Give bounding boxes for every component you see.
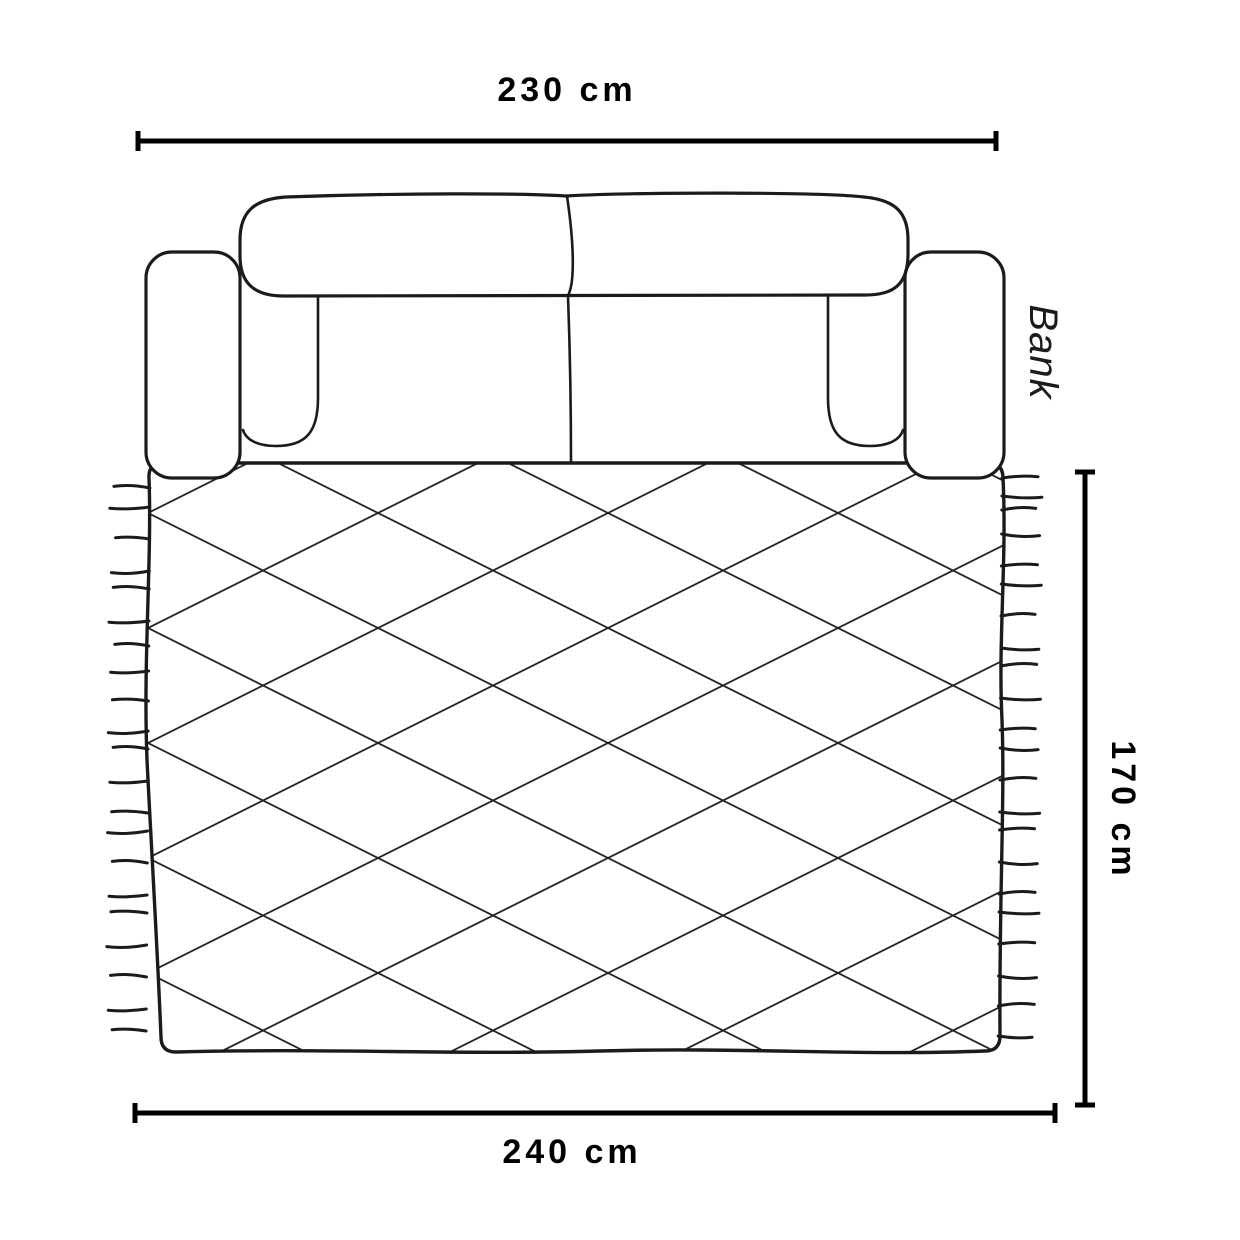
dim-right-label: 170 cm (1104, 740, 1142, 879)
rug-outline (146, 463, 1004, 1053)
dimension-right: 170 cm (1075, 472, 1142, 1105)
sofa-seat-seam (568, 296, 571, 462)
sofa-armrest-right (905, 252, 1004, 478)
dim-bottom-label: 240 cm (502, 1133, 641, 1171)
rug (107, 44, 1042, 1240)
rug-fringe-left (107, 486, 150, 1032)
sofa (146, 193, 1004, 478)
sofa-seat-crevice-right (828, 297, 903, 446)
dimension-top: 230 cm (138, 71, 996, 151)
sofa-armrest-left (146, 252, 240, 478)
diagram-canvas: 230 cm 240 cm 170 cm Bank (0, 0, 1240, 1240)
sofa-seat-crevice-left (243, 297, 318, 446)
dim-top-label: 230 cm (497, 71, 636, 109)
sofa-backrest-seam (567, 196, 573, 296)
dimension-bottom: 240 cm (135, 1103, 1055, 1171)
sofa-backrest (240, 193, 908, 296)
rug-diamond-pattern (130, 44, 1015, 1240)
sofa-label: Bank (1021, 304, 1065, 400)
sofa-rug-dimension-diagram: 230 cm 240 cm 170 cm Bank (0, 0, 1240, 1240)
